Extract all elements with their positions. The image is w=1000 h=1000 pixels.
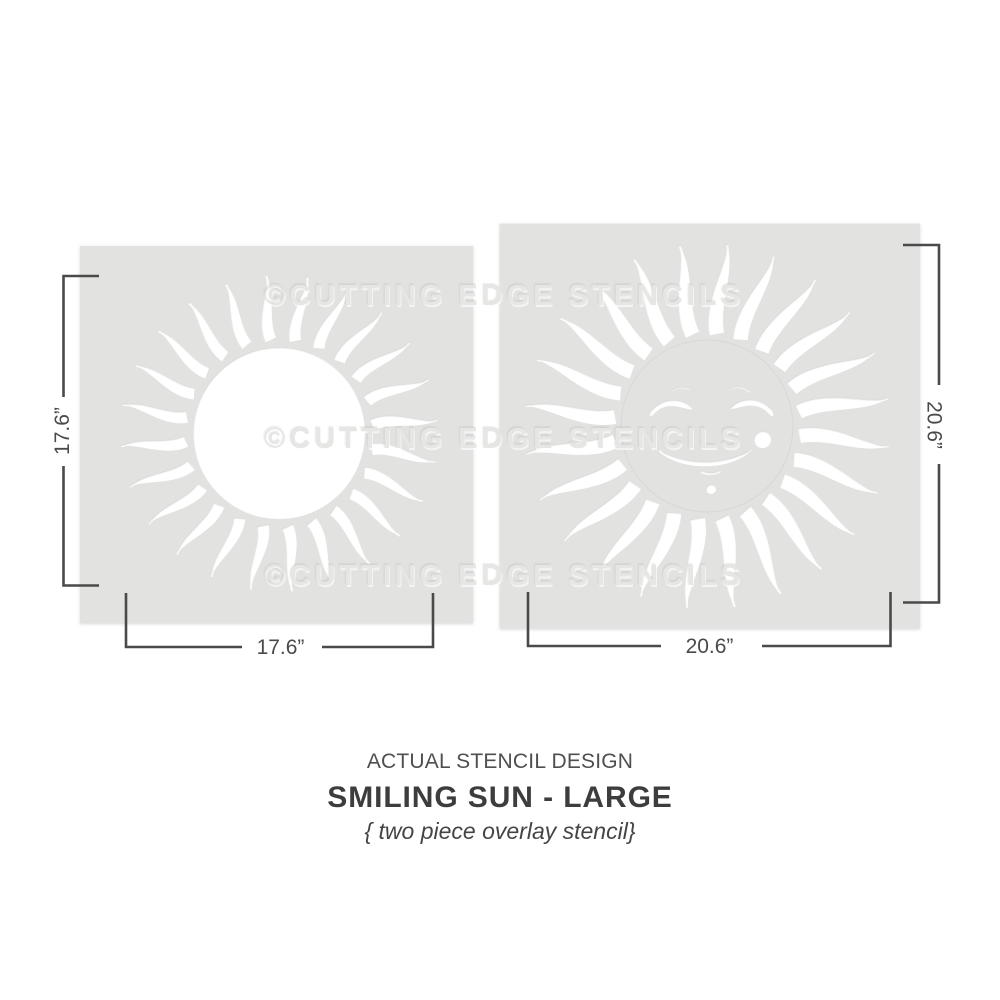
svg-text:©CUTTING EDGE STENCILS: ©CUTTING EDGE STENCILS bbox=[264, 560, 744, 592]
svg-text:©CUTTING EDGE STENCILS: ©CUTTING EDGE STENCILS bbox=[264, 280, 744, 312]
svg-text:17.6”: 17.6” bbox=[257, 636, 305, 659]
svg-text:17.6”: 17.6” bbox=[51, 407, 74, 455]
svg-text:©CUTTING EDGE STENCILS: ©CUTTING EDGE STENCILS bbox=[264, 423, 744, 455]
svg-text:20.6”: 20.6” bbox=[686, 635, 734, 658]
svg-text:20.6”: 20.6” bbox=[922, 401, 945, 449]
